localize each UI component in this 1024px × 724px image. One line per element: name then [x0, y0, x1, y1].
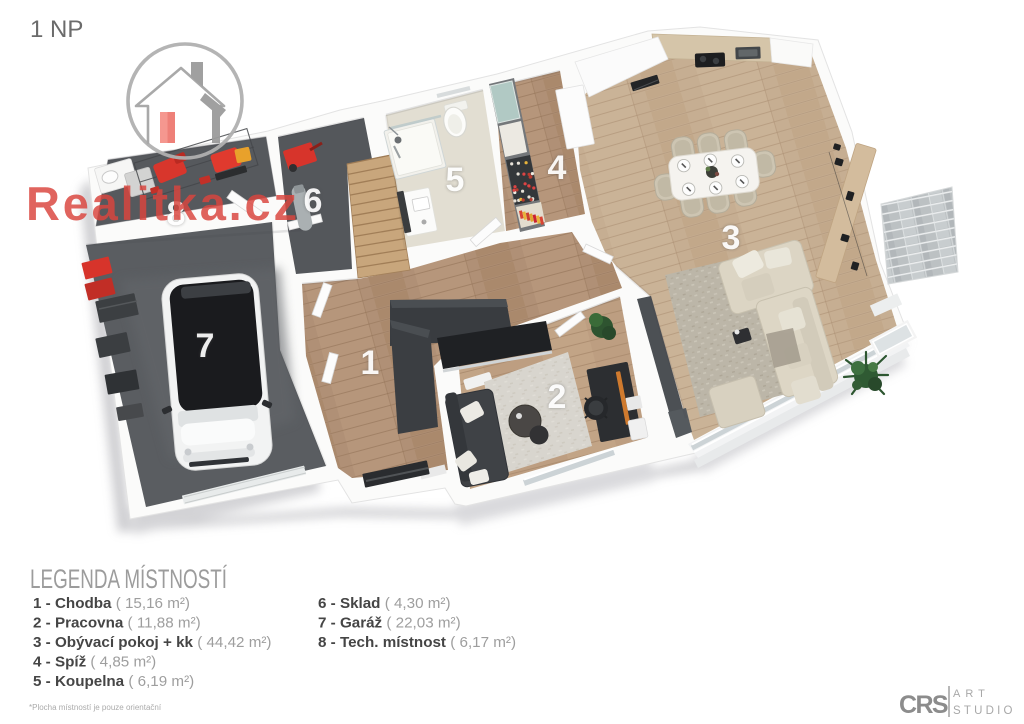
svg-text:1: 1	[361, 344, 380, 382]
svg-text:*Plocha místností je pouze ori: *Plocha místností je pouze orientační	[29, 703, 162, 712]
svg-text:3 - Obývací pokoj + kk ( 44,42: 3 - Obývací pokoj + kk ( 44,42 m²)	[33, 634, 271, 651]
svg-text:LEGENDA MÍSTNOSTÍ: LEGENDA MÍSTNOSTÍ	[30, 564, 227, 594]
svg-text:4: 4	[548, 149, 567, 187]
svg-text:STUDIO: STUDIO	[953, 705, 1016, 717]
svg-text:5 - Koupelna ( 6,19 m²): 5 - Koupelna ( 6,19 m²)	[33, 673, 194, 690]
svg-text:Realitka.cz: Realitka.cz	[26, 177, 300, 230]
svg-text:6 - Sklad ( 4,30 m²): 6 - Sklad ( 4,30 m²)	[318, 595, 451, 612]
svg-text:6: 6	[304, 182, 323, 220]
svg-text:3: 3	[722, 219, 741, 257]
svg-text:2: 2	[548, 378, 567, 416]
svg-text:7 - Garáž ( 22,03 m²): 7 - Garáž ( 22,03 m²)	[318, 615, 461, 632]
svg-text:ART: ART	[953, 688, 990, 700]
svg-text:CRS: CRS	[899, 691, 948, 719]
svg-text:5: 5	[446, 161, 465, 199]
svg-text:1 NP: 1 NP	[30, 16, 83, 43]
svg-text:2 - Pracovna ( 11,88 m²): 2 - Pracovna ( 11,88 m²)	[33, 615, 201, 632]
svg-text:8 - Tech. místnost ( 6,17 m²): 8 - Tech. místnost ( 6,17 m²)	[318, 634, 516, 651]
svg-text:4 - Spíž ( 4,85 m²): 4 - Spíž ( 4,85 m²)	[33, 654, 156, 671]
svg-text:1 - Chodba ( 15,16 m²): 1 - Chodba ( 15,16 m²)	[33, 595, 190, 612]
svg-text:7: 7	[196, 327, 215, 365]
